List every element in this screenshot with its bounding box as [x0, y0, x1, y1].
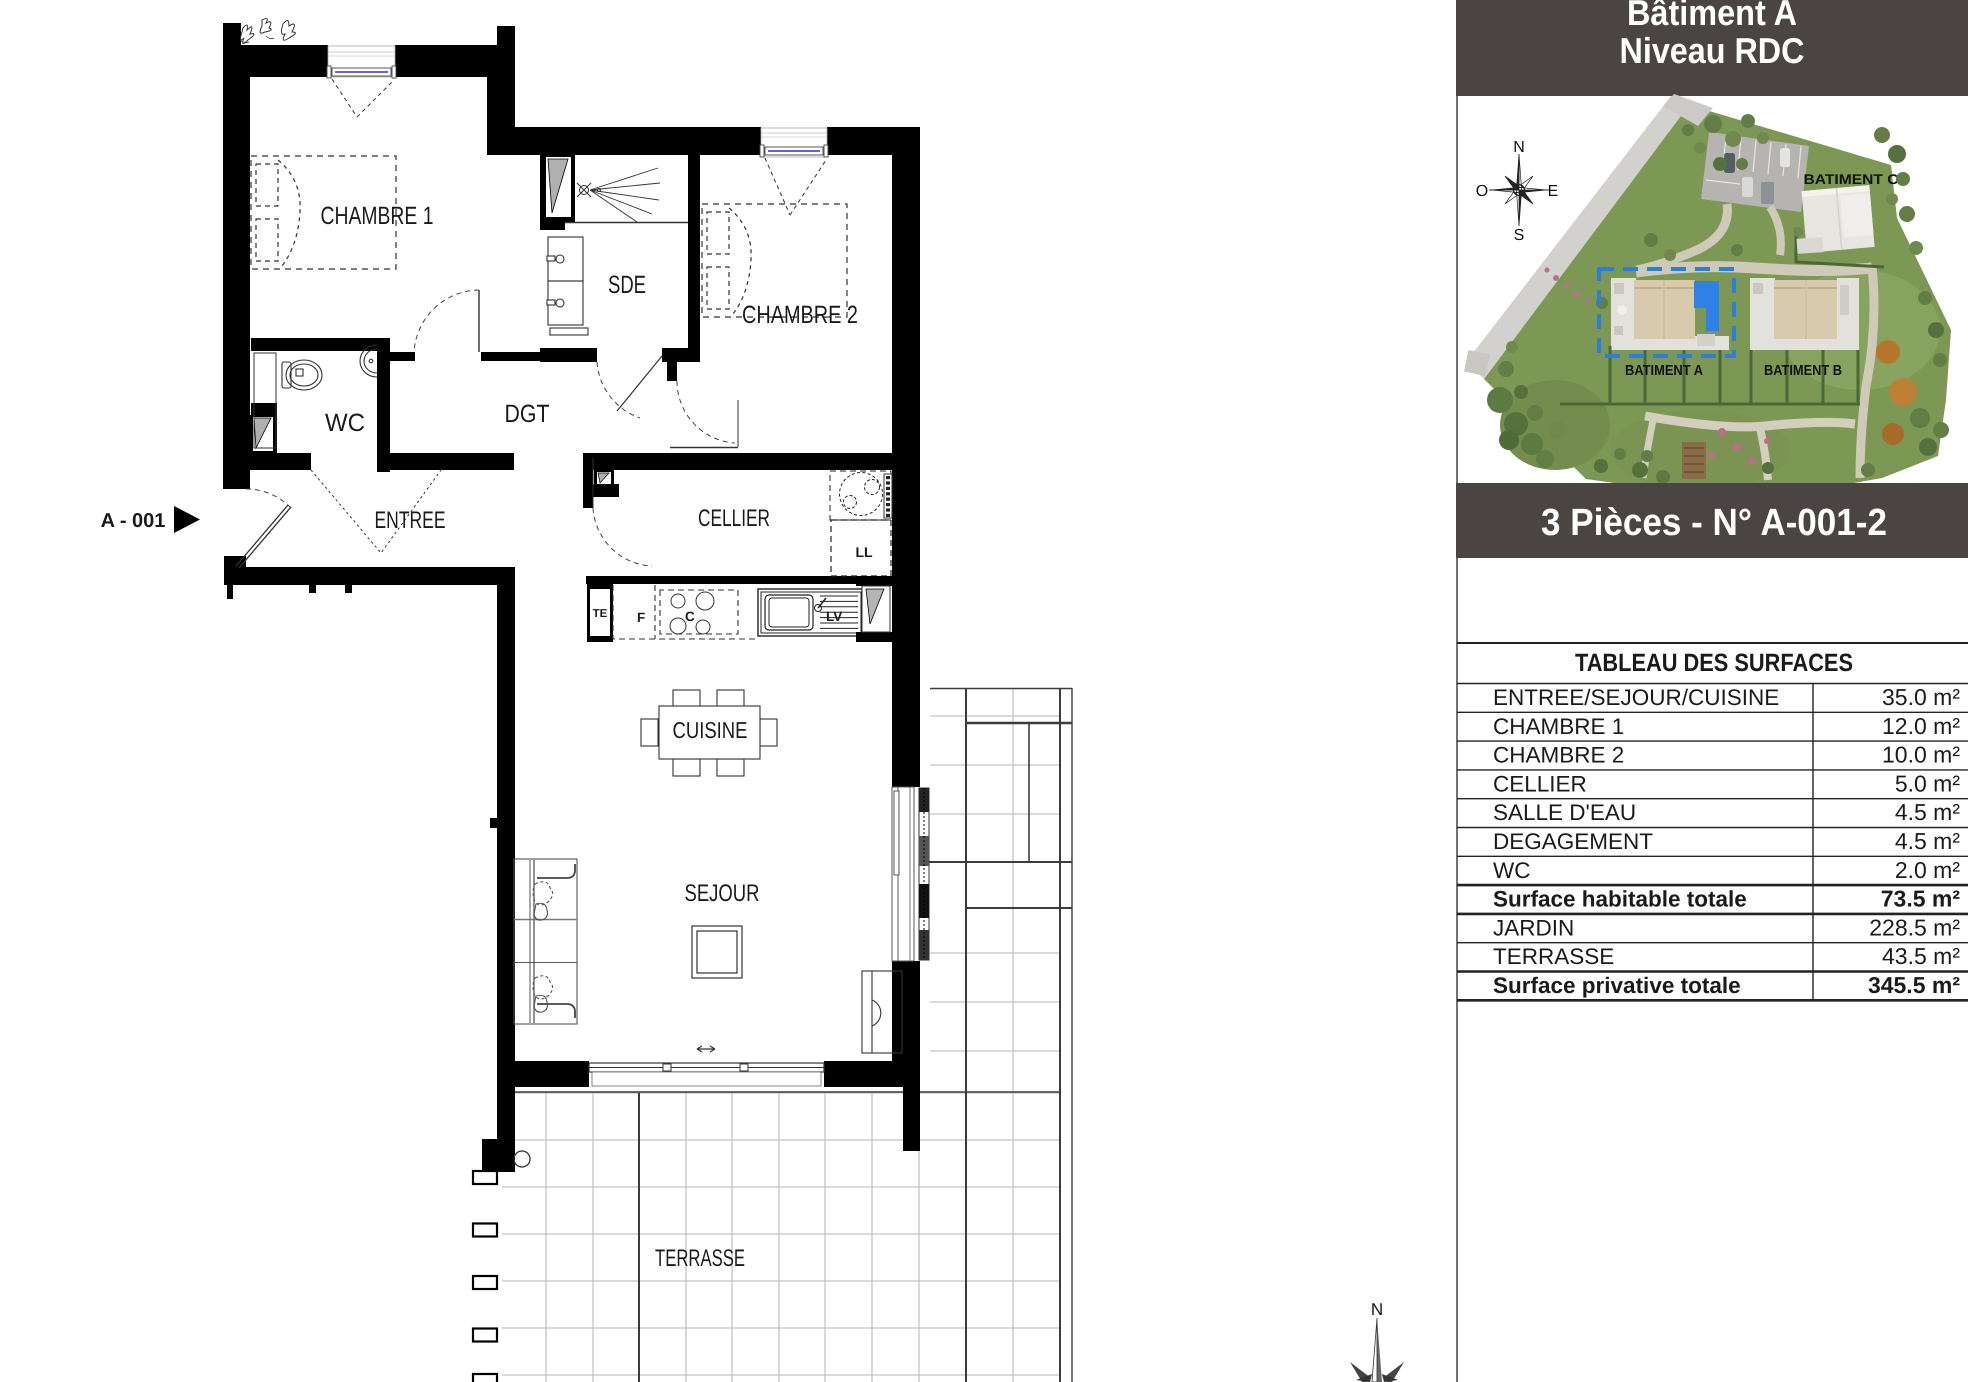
svg-text:WC: WC [325, 409, 365, 437]
svg-text:ENTREE: ENTREE [375, 507, 446, 534]
svg-text:4.5 m²: 4.5 m² [1895, 799, 1961, 825]
svg-text:2.0 m²: 2.0 m² [1895, 857, 1961, 883]
svg-text:N: N [1513, 139, 1525, 156]
svg-text:ENTREE/SEJOUR/CUISINE: ENTREE/SEJOUR/CUISINE [1493, 685, 1779, 710]
svg-text:BATIMENT C: BATIMENT C [1804, 171, 1899, 187]
svg-text:JARDIN: JARDIN [1493, 915, 1574, 940]
svg-text:SDE: SDE [608, 271, 646, 299]
svg-text:S: S [1514, 227, 1525, 244]
svg-text:Surface habitable totale: Surface habitable totale [1493, 887, 1747, 912]
svg-text:C: C [685, 609, 695, 624]
svg-text:F: F [637, 610, 645, 625]
svg-text:BATIMENT A: BATIMENT A [1625, 363, 1703, 379]
svg-text:CUISINE: CUISINE [673, 717, 748, 743]
svg-text:TERRASSE: TERRASSE [1493, 944, 1614, 969]
svg-text:LV: LV [826, 609, 842, 624]
svg-text:CHAMBRE 1: CHAMBRE 1 [1493, 714, 1624, 739]
svg-text:73.5 m²: 73.5 m² [1881, 886, 1961, 912]
svg-text:4.5 m²: 4.5 m² [1895, 828, 1961, 854]
svg-text:SEJOUR: SEJOUR [685, 880, 760, 907]
svg-text:35.0 m²: 35.0 m² [1882, 684, 1960, 710]
svg-text:Bâtiment A: Bâtiment A [1627, 0, 1797, 33]
svg-text:TERRASSE: TERRASSE [655, 1245, 745, 1272]
svg-text:TE: TE [593, 608, 608, 620]
svg-text:345.5 m²: 345.5 m² [1868, 972, 1960, 998]
svg-text:CHAMBRE 2: CHAMBRE 2 [1493, 743, 1624, 768]
svg-text:3 Pièces - N° A-001-2: 3 Pièces - N° A-001-2 [1541, 502, 1887, 544]
svg-text:12.0 m²: 12.0 m² [1882, 713, 1960, 739]
svg-text:E: E [1548, 183, 1559, 200]
svg-text:Surface privative totale: Surface privative totale [1493, 973, 1741, 998]
svg-text:DGT: DGT [505, 400, 550, 428]
svg-text:DEGAGEMENT: DEGAGEMENT [1493, 829, 1653, 854]
svg-text:O: O [1476, 183, 1488, 200]
svg-text:BATIMENT B: BATIMENT B [1764, 363, 1842, 379]
svg-text:N: N [1371, 1300, 1383, 1319]
svg-text:LL: LL [855, 544, 873, 560]
svg-text:WC: WC [1493, 858, 1531, 883]
svg-text:TABLEAU DES SURFACES: TABLEAU DES SURFACES [1575, 649, 1853, 677]
svg-text:43.5 m²: 43.5 m² [1882, 943, 1960, 969]
svg-text:CHAMBRE 1: CHAMBRE 1 [321, 202, 434, 230]
svg-text:10.0 m²: 10.0 m² [1882, 742, 1960, 768]
svg-text:A - 001: A - 001 [101, 510, 166, 532]
svg-text:5.0 m²: 5.0 m² [1895, 770, 1961, 796]
svg-text:SALLE D'EAU: SALLE D'EAU [1493, 800, 1636, 825]
svg-text:228.5 m²: 228.5 m² [1869, 914, 1960, 940]
svg-text:CELLIER: CELLIER [698, 505, 770, 532]
svg-text:Niveau RDC: Niveau RDC [1620, 30, 1805, 71]
svg-text:CELLIER: CELLIER [1493, 771, 1587, 796]
svg-text:CHAMBRE 2: CHAMBRE 2 [742, 301, 858, 329]
